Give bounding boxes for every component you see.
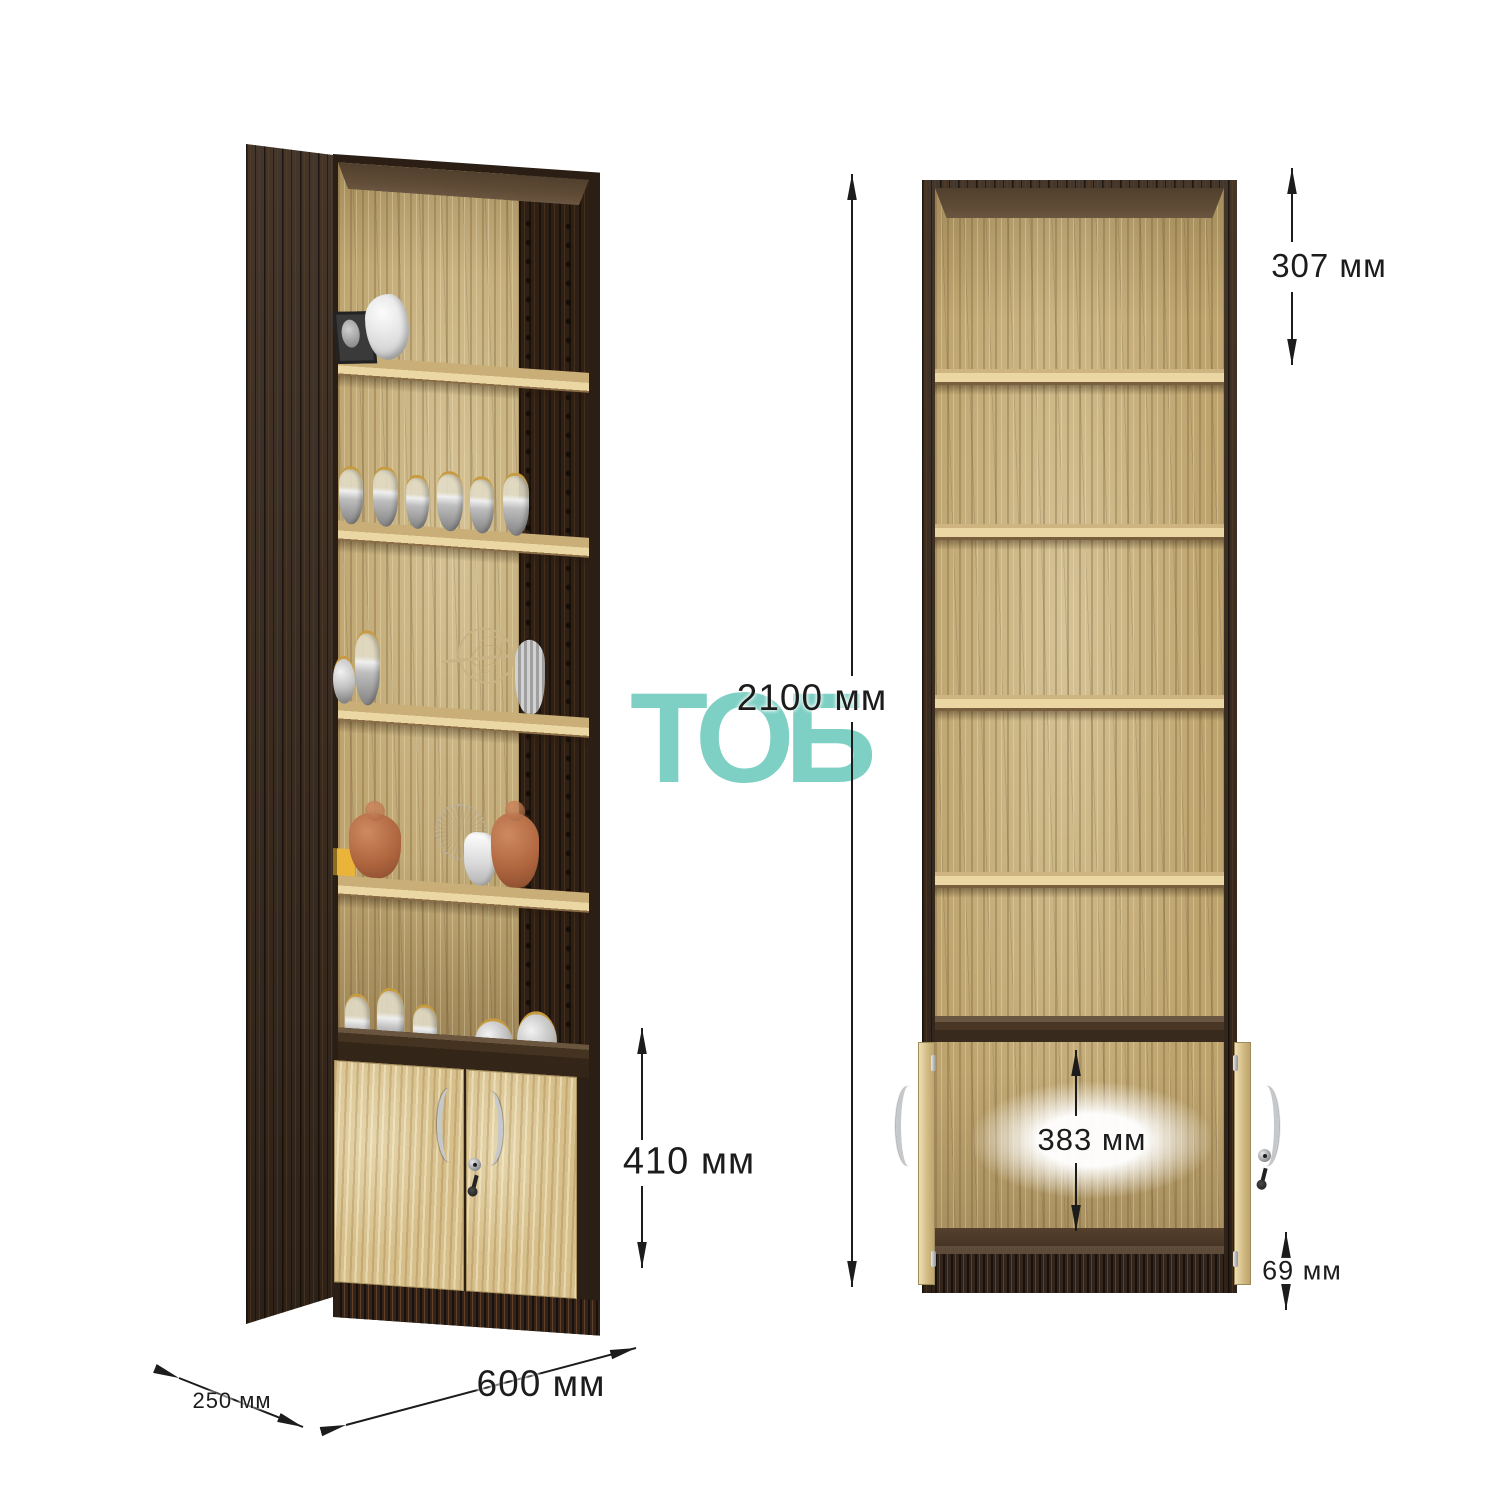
dimension-depth: 250 мм: [192, 1388, 271, 1414]
dimension-first-shelf: 307 мм: [1271, 247, 1387, 285]
dimension-cabinet-inner-height: 383 мм: [1038, 1122, 1147, 1158]
dimension-doors-height: 410 мм: [623, 1141, 755, 1184]
dimension-total-height: 2100 мм: [737, 677, 887, 719]
dimension-width: 600 мм: [477, 1363, 606, 1405]
product-dimension-diagram: ТОБ 2100 мм 307 мм 410 мм 383 мм 69 мм 6…: [0, 0, 1500, 1500]
dimension-plinth-height: 69 мм: [1262, 1256, 1342, 1287]
